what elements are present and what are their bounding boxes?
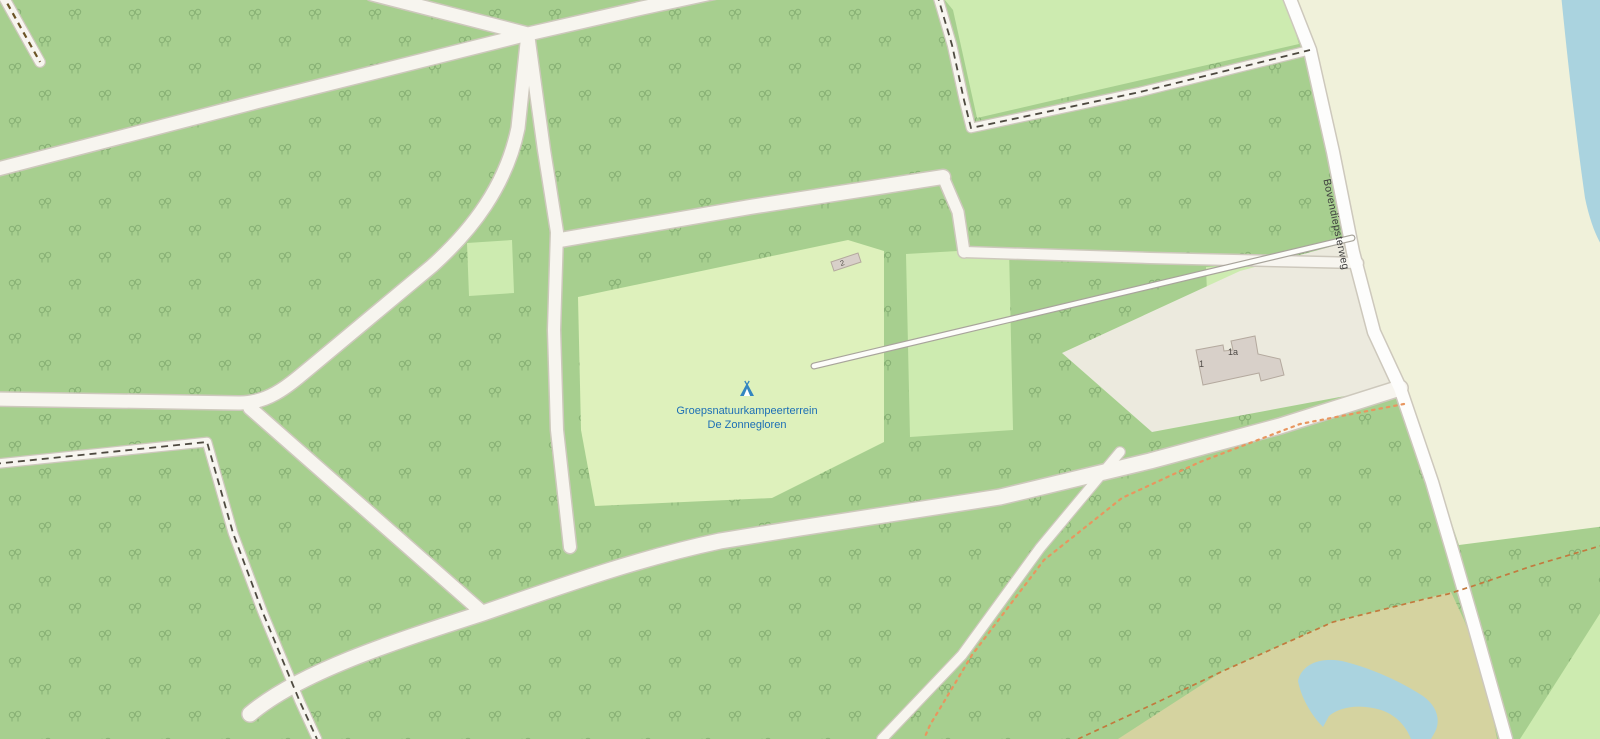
map-svg: Groepsnatuurkampeerterrein De Zonneglore… [0,0,1600,739]
campsite-label-line2: De Zonnegloren [708,419,787,431]
house-number-1a: 1a [1228,347,1238,357]
grass-parcel-west [467,240,514,296]
house-number-1: 1 [1199,359,1204,369]
campsite-label-line1: Groepsnatuurkampeerterrein [676,405,817,417]
map-canvas[interactable]: Groepsnatuurkampeerterrein De Zonneglore… [0,0,1600,739]
